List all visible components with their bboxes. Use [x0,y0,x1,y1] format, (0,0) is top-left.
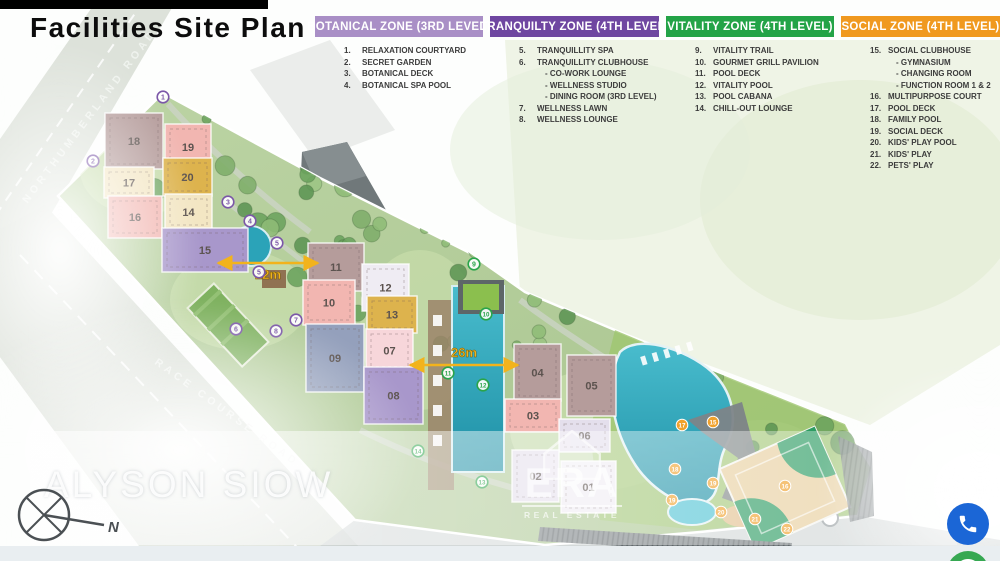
legend-item-label: KIDS' PLAY [888,149,932,161]
legend-item-label: POOL DECK [713,68,760,80]
marker-number: 4 [248,218,252,225]
building-block-07: 07 [366,329,413,372]
building-number: 09 [329,353,341,365]
legend-item-label: RELAXATION COURTYARD [362,45,466,57]
legend-item-number: 15. [870,45,888,57]
legend-item-number: 7. [519,103,537,115]
facility-marker-8: 8 [270,325,282,337]
legend-item-number: 16. [870,91,888,103]
facility-marker-11: 11 [442,367,454,379]
legend-sub-item-label: - DINING ROOM (3RD LEVEL) [545,91,657,103]
legend-zone-tranquility: TRANQUILTY ZONE (4TH LEVEL)5.TRANQUILLIT… [490,16,659,126]
facility-marker-17: 17 [676,419,688,431]
building-number: 19 [182,142,194,154]
marker-number: 11 [445,370,452,377]
building-number: 04 [531,368,544,380]
marker-number: 7 [294,317,298,324]
marker-number: 6 [234,326,238,333]
legend-item-label: FAMILY POOL [888,114,941,126]
era-brand-sub: REAL ESTATE [522,505,622,520]
marker-number: 12 [480,382,487,389]
top-left-black-bar [0,0,268,9]
legend-item-label: SECRET GARDEN [362,57,431,69]
legend-item-label: CHILL-OUT LOUNGE [713,103,793,115]
legend-item-number: 1. [344,45,362,57]
legend-item-label: GOURMET GRILL PAVILION [713,57,819,69]
legend-zone-header: SOCIAL ZONE (4TH LEVEL) [841,16,1000,37]
legend-item: 8.WELLNESS LOUNGE [490,114,659,126]
legend-sub-item-label: - CO-WORK LOUNGE [545,68,626,80]
legend-item-number: 8. [519,114,537,126]
building-number: 11 [330,262,342,274]
bottom-strip [0,546,1000,561]
facility-marker-4: 4 [244,215,256,227]
building-number: 16 [129,212,141,224]
legend-sub-item: - CHANGING ROOM [841,68,1000,80]
legend-item: 4.BOTANICAL SPA POOL [315,80,483,92]
legend-item-label: POOL CABANA [713,91,772,103]
legend-item-number: 3. [344,68,362,80]
legend-item-label: BOTANICAL DECK [362,68,433,80]
legend-item: 14.CHILL-OUT LOUNGE [666,103,834,115]
legend-sub-item: - DINING ROOM (3RD LEVEL) [490,91,659,103]
legend-item: 21.KIDS' PLAY [841,149,1000,161]
compass-north-label: N [108,519,120,536]
legend-item-number: 17. [870,103,888,115]
legend-item: 18.FAMILY POOL [841,114,1000,126]
building-block-08: 08 [364,367,423,424]
legend-item: 2.SECRET GARDEN [315,57,483,69]
legend-zone-header: VITALITY ZONE (4TH LEVEL) [666,16,834,37]
legend-item: 22.PETS' PLAY [841,160,1000,172]
legend-item-label: VITALITY POOL [713,80,773,92]
legend-zone-botanical: BOTANICAL ZONE (3RD LEVEL)1.RELAXATION C… [315,16,483,91]
facility-marker-12: 12 [477,379,489,391]
marker-number: 17 [679,422,686,429]
building-number: 03 [527,411,539,423]
facility-marker-6: 6 [230,323,242,335]
marker-number: 9 [472,261,476,268]
legend-item-number: 2. [344,57,362,69]
legend-item: 9.VITALITY TRAIL [666,45,834,57]
legend-zone-header: BOTANICAL ZONE (3RD LEVEL) [315,16,483,37]
legend-item-number: 5. [519,45,537,57]
building-number: 15 [199,245,211,257]
legend-zone-vitality: VITALITY ZONE (4TH LEVEL)9.VITALITY TRAI… [666,16,834,114]
building-block-09: 09 [306,324,364,392]
legend-item-number: 20. [870,137,888,149]
building-number: 14 [182,207,195,219]
building-number: 18 [128,136,140,148]
legend-sub-item: - WELLNESS STUDIO [490,80,659,92]
legend-item: 12.VITALITY POOL [666,80,834,92]
marker-number: 1 [161,94,165,101]
legend-sub-item: - CO-WORK LOUNGE [490,68,659,80]
legend-item-number: 4. [344,80,362,92]
legend-item-label: POOL DECK [888,103,935,115]
legend-item-number: 6. [519,57,537,69]
legend-item-label: TRANQUILLITY SPA [537,45,614,57]
legend-sub-item: - FUNCTION ROOM 1 & 2 [841,80,1000,92]
building-block-10: 10 [303,280,355,325]
legend-item-label: SOCIAL DECK [888,126,943,138]
legend-item-number: 9. [695,45,713,57]
legend-item-number: 11. [695,68,713,80]
legend-item: 1.RELAXATION COURTYARD [315,45,483,57]
facility-marker-5: 5 [253,266,265,278]
legend-item-number: 12. [695,80,713,92]
legend-item-number: 19. [870,126,888,138]
legend-item: 5.TRANQUILLITY SPA [490,45,659,57]
legend-item-label: MULTIPURPOSE COURT [888,91,982,103]
phone-icon [957,513,979,535]
legend-item-number: 18. [870,114,888,126]
marker-number: 15 [710,419,717,426]
legend-item-label: WELLNESS LAWN [537,103,607,115]
page-title: Facilities Site Plan [30,12,306,44]
building-number: 05 [585,381,597,393]
legend-item: 17.POOL DECK [841,103,1000,115]
legend-sub-item-label: - CHANGING ROOM [896,68,972,80]
legend-item: 13.POOL CABANA [666,91,834,103]
era-house-icon [543,430,601,480]
building-number: 20 [181,172,193,184]
legend-sub-item-label: - WELLNESS STUDIO [545,80,627,92]
legend-zone-social: SOCIAL ZONE (4TH LEVEL)15.SOCIAL CLUBHOU… [841,16,1000,172]
building-block-05: 05 [567,355,616,416]
facility-marker-7: 7 [290,314,302,326]
legend-item-number: 14. [695,103,713,115]
building-number: 08 [387,391,399,403]
legend-item: 11.POOL DECK [666,68,834,80]
building-block-13: 13 [367,296,417,333]
facility-marker-5: 5 [271,237,283,249]
legend-item-label: PETS' PLAY [888,160,934,172]
building-block-15: 15 [162,228,248,272]
legend-item-number: 13. [695,91,713,103]
building-number: 07 [383,346,395,358]
marker-number: 3 [226,199,230,206]
building-number: 17 [123,178,135,190]
building-block-20: 20 [163,158,212,196]
legend-item-label: VITALITY TRAIL [713,45,774,57]
legend-sub-item: - GYMNASIUM [841,57,1000,69]
building-block-18: 18 [105,113,163,169]
facility-marker-3: 3 [222,196,234,208]
legend-zone-header: TRANQUILTY ZONE (4TH LEVEL) [490,16,659,37]
building-number: 10 [323,298,335,310]
facility-marker-1: 1 [157,91,169,103]
legend-item-label: BOTANICAL SPA POOL [362,80,451,92]
legend-item: 15.SOCIAL CLUBHOUSE [841,45,1000,57]
marker-number: 10 [483,311,490,318]
era-logo: ERA REAL ESTATE [522,430,622,520]
building-number: 13 [386,310,398,322]
facility-marker-2: 2 [87,155,99,167]
facility-marker-10: 10 [480,308,492,320]
legend-item: 7.WELLNESS LAWN [490,103,659,115]
facilities-site-plan-page: NORTHUMBERLAND ROADRACE COURSE ROAD 1819… [0,0,1000,561]
compass: N [12,484,122,548]
marker-number: 5 [257,269,261,276]
legend-item-label: WELLNESS LOUNGE [537,114,618,126]
legend-item-label: SOCIAL CLUBHOUSE [888,45,971,57]
legend-item-label: TRANQUILLITY CLUBHOUSE [537,57,648,69]
facility-marker-15: 15 [707,416,719,428]
legend-item: 6.TRANQUILLITY CLUBHOUSE [490,57,659,69]
legend-sub-item-label: - FUNCTION ROOM 1 & 2 [896,80,991,92]
legend-item: 3.BOTANICAL DECK [315,68,483,80]
marker-number: 2 [91,158,95,165]
dimension-label: 26m [451,345,477,360]
building-block-16: 16 [108,196,162,238]
legend-item-number: 10. [695,57,713,69]
facility-marker-9: 9 [468,258,480,270]
legend-item-number: 21. [870,149,888,161]
building-number: 12 [379,283,391,295]
marker-number: 8 [274,328,278,335]
building-block-04: 04 [514,344,561,401]
legend-item-label: KIDS' PLAY POOL [888,137,957,149]
legend-item-number: 22. [870,160,888,172]
marker-number: 5 [275,240,279,247]
legend-item: 16.MULTIPURPOSE COURT [841,91,1000,103]
legend-item: 20.KIDS' PLAY POOL [841,137,1000,149]
legend-item: 10.GOURMET GRILL PAVILION [666,57,834,69]
legend-item: 19.SOCIAL DECK [841,126,1000,138]
phone-call-button[interactable] [947,503,989,545]
building-block-14: 14 [165,194,212,230]
building-block-17: 17 [104,167,154,198]
building-block-03: 03 [505,399,561,432]
legend-sub-item-label: - GYMNASIUM [896,57,951,69]
gourmet-grill-pavilion [458,280,504,314]
